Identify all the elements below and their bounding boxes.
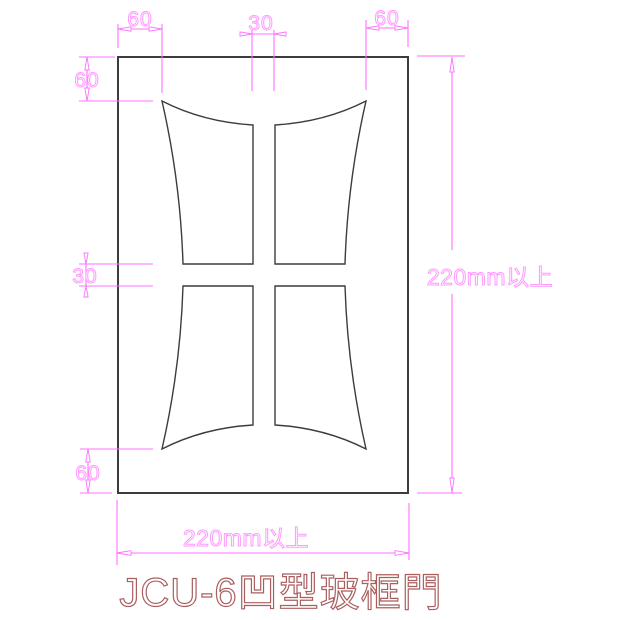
dim-right-height: 220mm以上	[417, 56, 553, 493]
drawing-title: JCU-6凹型玻框門	[119, 571, 442, 615]
arrowhead-right-icon	[395, 551, 409, 556]
arrowhead-up-icon	[450, 58, 454, 72]
dim-right-height-label: 220mm以上	[427, 264, 553, 290]
glass-panel-upper-left	[162, 101, 253, 264]
dim-bottom-width: 220mm以上	[117, 500, 409, 565]
dim-top-right-label: 60	[374, 7, 399, 30]
technical-drawing-canvas: 60 30 60 60	[0, 0, 620, 620]
glass-panel-lower-left	[162, 286, 253, 449]
arrowhead-icon	[274, 32, 286, 36]
glass-panel-upper-right	[275, 101, 366, 264]
dim-left-bottom-label: 60	[75, 462, 100, 485]
arrowhead-left-icon	[117, 551, 131, 556]
arrowhead-up-icon	[86, 449, 90, 462]
dim-left-bottom: 60	[75, 449, 153, 493]
dim-left-top-label: 60	[74, 69, 99, 92]
dim-top-left-label: 60	[127, 8, 152, 31]
arrowhead-icon	[84, 253, 88, 264]
dim-left-top: 60	[74, 57, 153, 101]
dim-left-middle-label: 30	[72, 265, 97, 288]
dim-top-right: 60	[366, 7, 408, 90]
dim-top-left: 60	[118, 8, 162, 93]
arrowhead-down-icon	[450, 478, 454, 492]
dim-top-center-label: 30	[248, 12, 273, 35]
dim-bottom-width-label: 220mm以上	[183, 525, 309, 551]
glass-panel-lower-right	[275, 286, 366, 449]
dim-top-center: 30	[240, 12, 286, 91]
door-outline	[118, 57, 408, 493]
dim-left-middle: 30	[72, 253, 153, 297]
cad-drawing-page: 60 30 60 60	[0, 0, 620, 620]
